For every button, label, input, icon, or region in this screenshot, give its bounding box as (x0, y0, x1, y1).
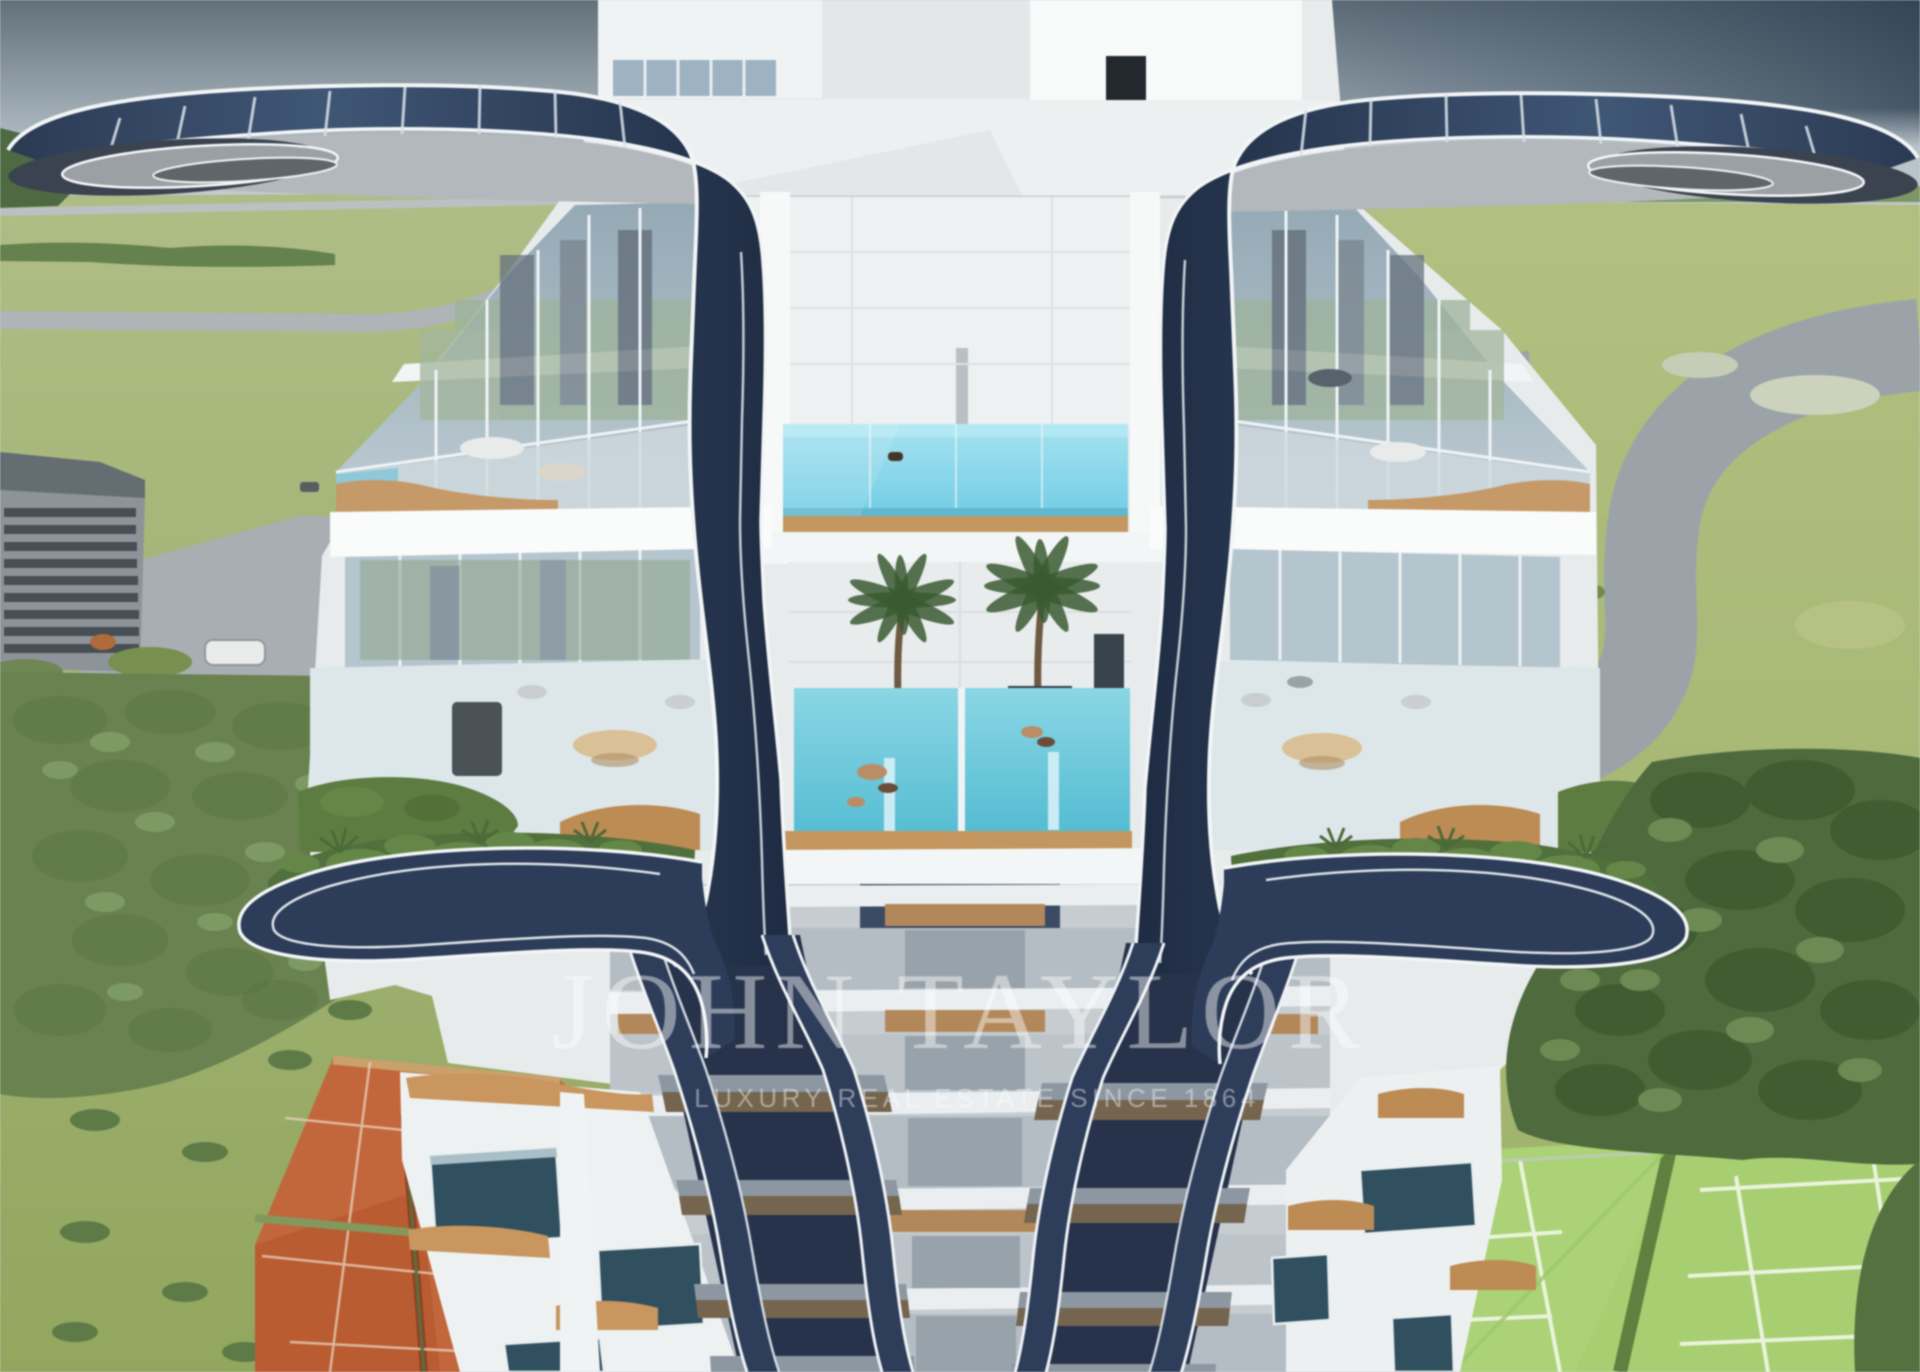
svg-text:LUXURY REAL ESTATE SINCE 1864: LUXURY REAL ESTATE SINCE 1864 (694, 1083, 1259, 1113)
svg-text:JOHN TAYLOR: JOHN TAYLOR (551, 951, 1368, 1072)
